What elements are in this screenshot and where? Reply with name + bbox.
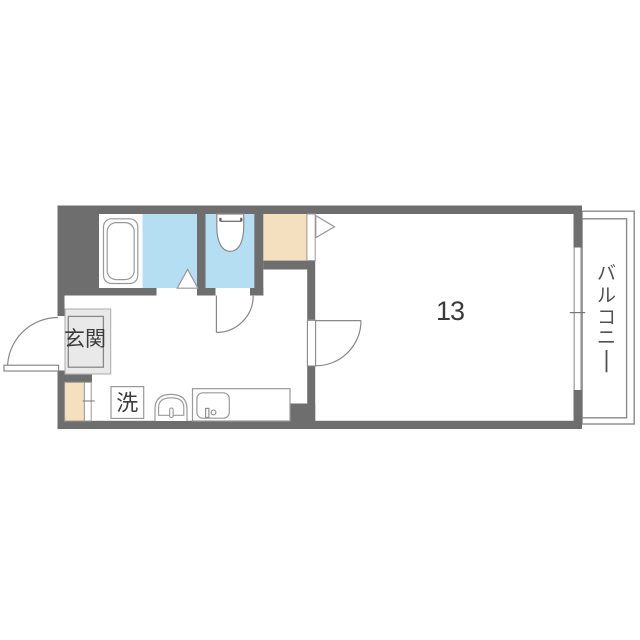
- svg-text:玄関: 玄関: [64, 328, 106, 351]
- svg-text:洗: 洗: [116, 391, 138, 416]
- svg-text:コ: コ: [597, 308, 616, 329]
- svg-text:バ: バ: [597, 264, 616, 285]
- svg-text:ル: ル: [597, 286, 616, 307]
- svg-text:13: 13: [436, 296, 464, 326]
- svg-text:ニ: ニ: [597, 328, 616, 349]
